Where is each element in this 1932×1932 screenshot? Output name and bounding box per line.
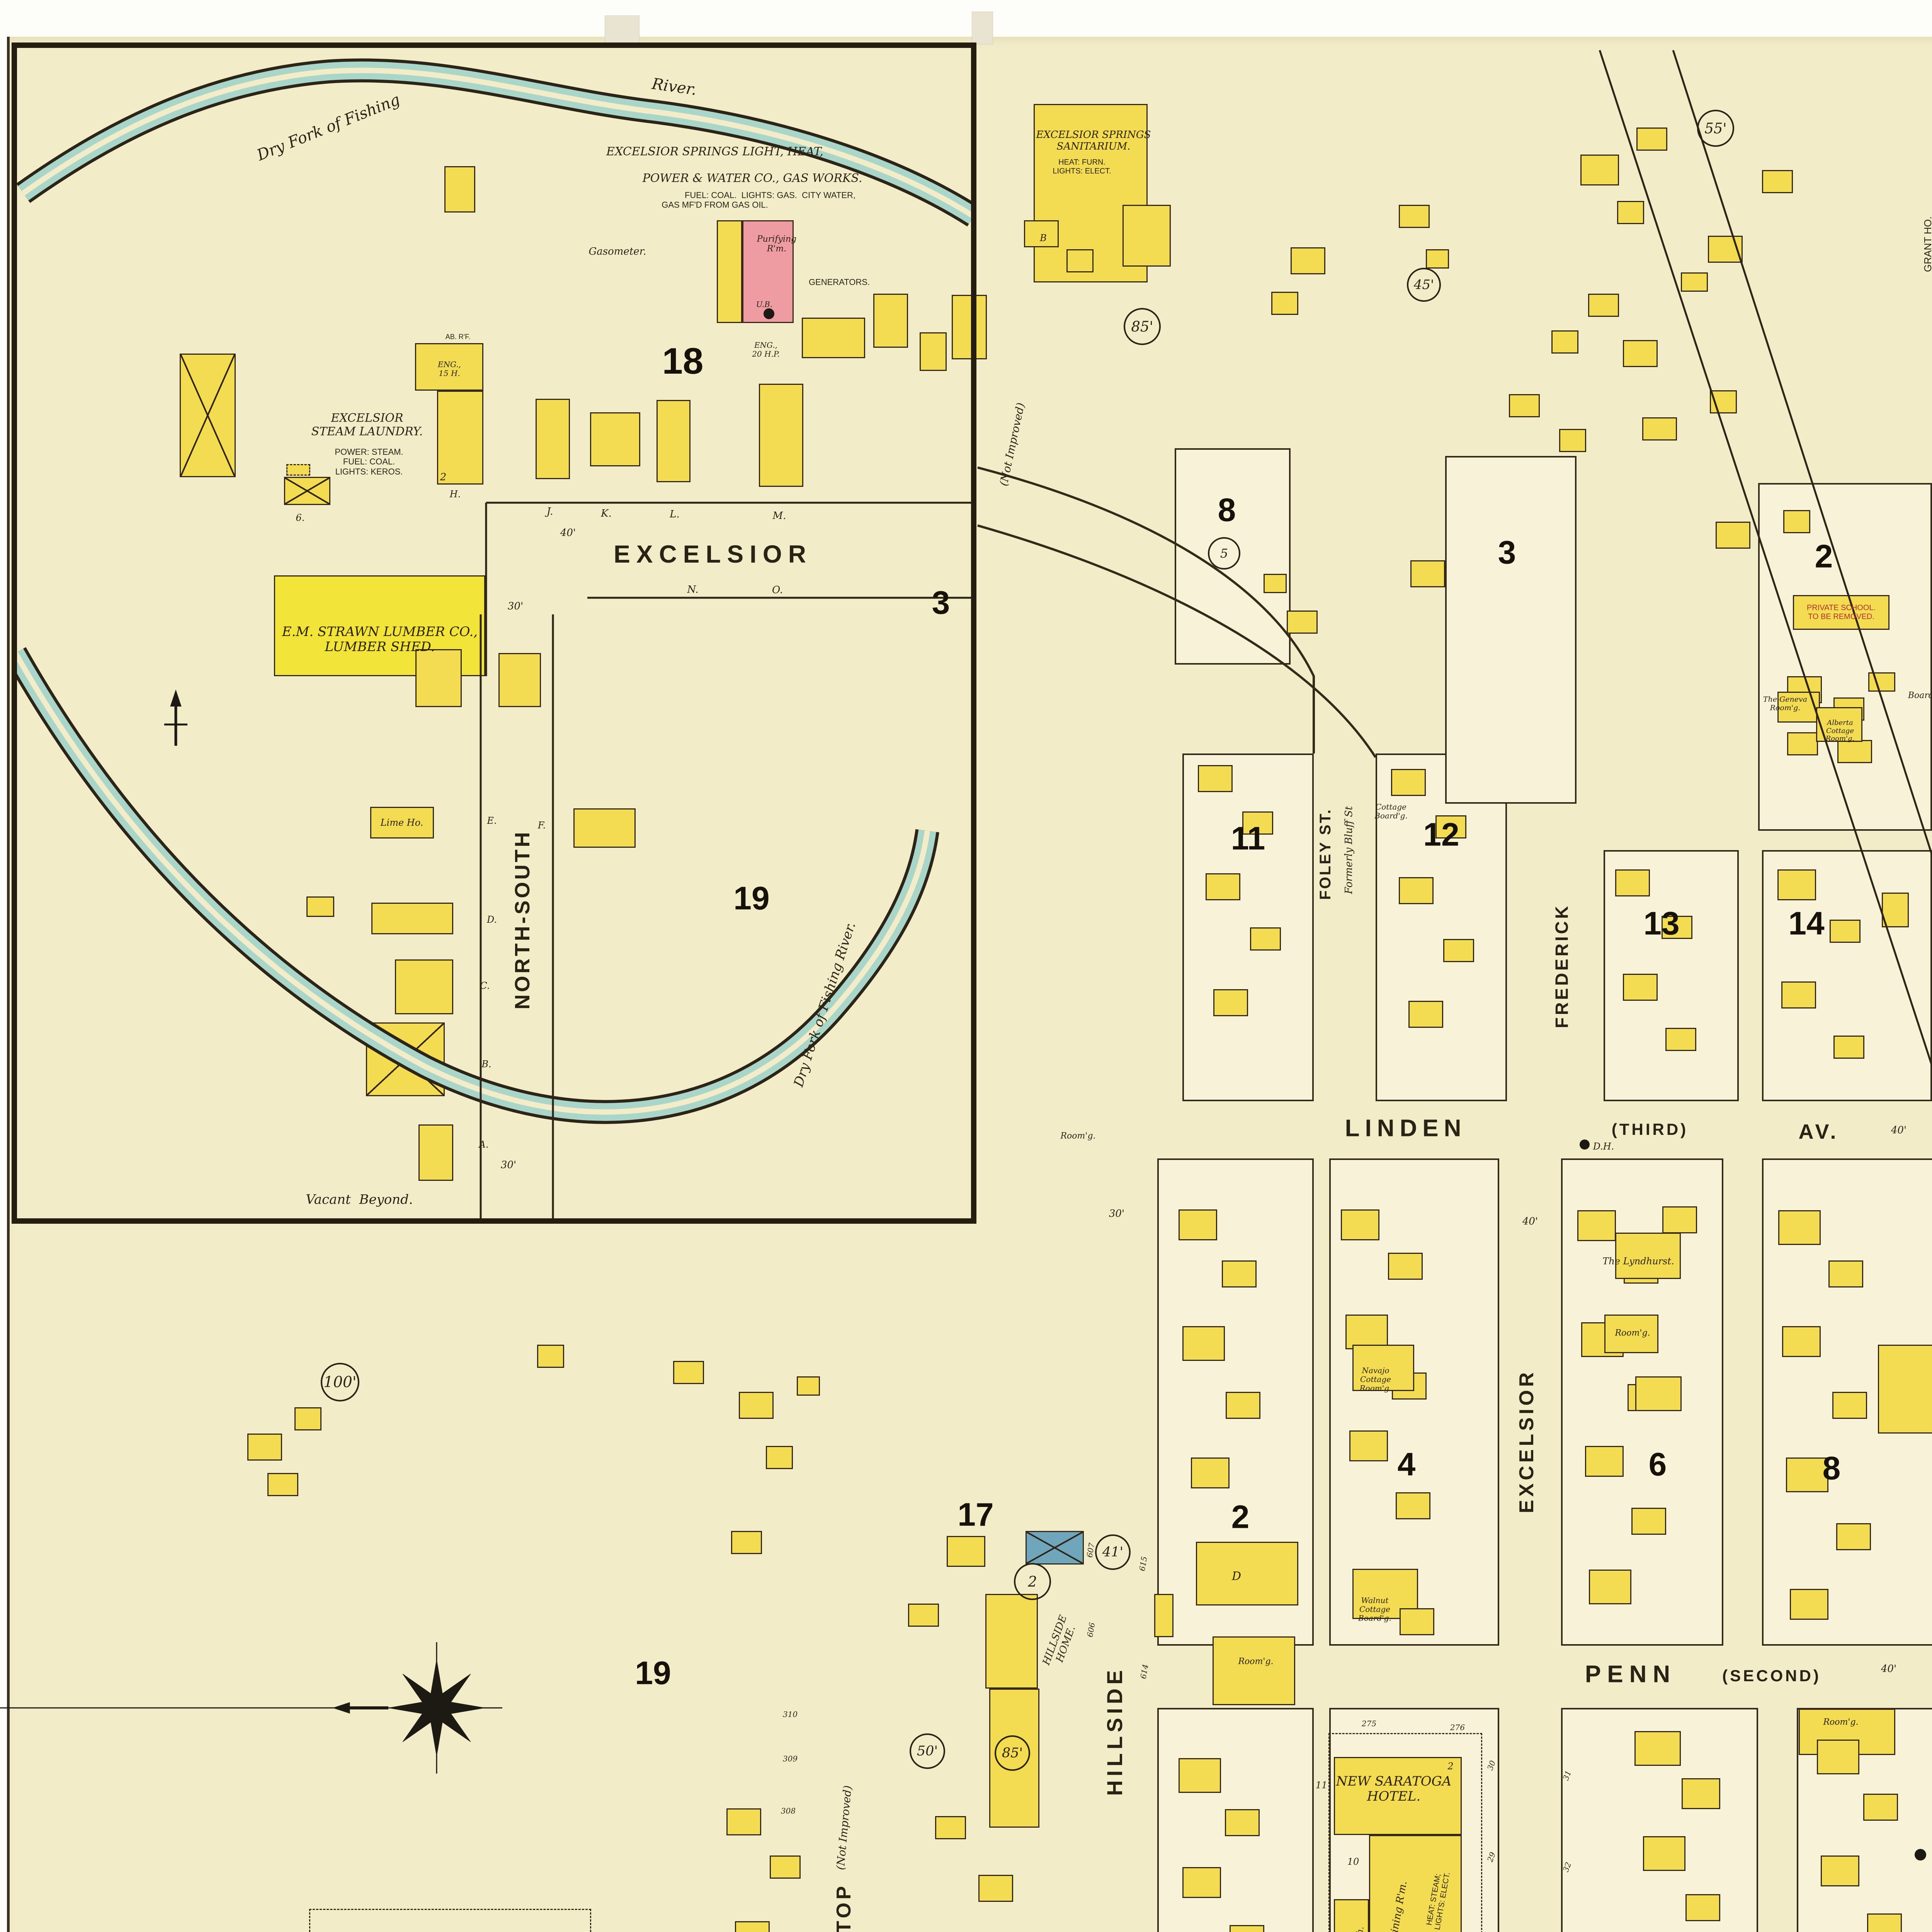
map-label: 12 [1423,816,1459,854]
map-label: 606 [1085,1622,1097,1638]
map-label: FUEL: COAL. LIGHTS: GAS. CITY WATER, [685,190,855,200]
map-label: 2 [1447,1761,1453,1772]
map-label: 30' [1109,1208,1124,1220]
hydrant-dot-icon [1915,1849,1926,1861]
map-label: HEAT: STEAM; LIGHTS: ELECT. [1424,1870,1452,1931]
measurement-circle: 2 [1014,1563,1051,1600]
map-label: 17 [957,1496,993,1534]
map-label: NORTH-SOUTH [510,830,534,1010]
map-label: 276 [1450,1723,1465,1732]
map-label: EXCELSIOR [614,540,812,569]
map-label: U.B. [756,300,772,309]
map-label: Dry Fork of Fishing [254,91,402,165]
map-label: 8 [1218,492,1236,529]
measurement-circle: 5 [1208,537,1240,570]
map-label: GRANT HO. [1922,216,1932,272]
map-label: EXCELSIOR STEAM LAUNDRY. [311,412,423,439]
map-label: J. [547,506,553,518]
map-label: H. [450,489,461,500]
map-label: LINDEN [1345,1114,1467,1142]
map-label: 40' [1881,1663,1896,1675]
map-label: D. [487,915,497,925]
map-label: (THIRD) [1612,1120,1688,1139]
map-label: F. [538,820,546,831]
map-label: 6 [1649,1446,1667,1483]
measurement-circle: 41' [1095,1534,1131,1570]
map-label: 14 [1788,905,1824,942]
map-label: 29 [1486,1851,1497,1863]
map-label: ENG., 15 H. [438,360,461,378]
map-label: 19 [733,880,769,917]
map-label: POWER: STEAM. FUEL: COAL. LIGHTS: KEROS. [335,447,403,476]
measurement-circle: 85' [995,1735,1030,1771]
map-label: HILLSIDE [1102,1666,1127,1796]
map-label: Lime Ho. [381,818,423,828]
map-label: Kitch. [1352,1925,1366,1932]
hydrant-dot-icon [764,308,774,319]
map-label: The Lyndhurst. [1602,1256,1674,1267]
map-label: Board'g. [1908,690,1932,700]
map-label: 275 [1362,1719,1376,1728]
map-label: A. [479,1139,489,1150]
map-label: EXCELSIOR SPRINGS LIGHT, HEAT, [606,145,823,159]
map-label: Room'g. [1238,1656,1273,1666]
map-label: EXCELSIOR SPRINGS SANITARIUM. [1036,129,1151,153]
measurement-circle: 85' [1124,308,1161,345]
map-label: EXCELSIOR [1515,1369,1539,1514]
map-label: 6. [296,513,305,524]
map-label: 615 [1138,1556,1149,1572]
map-label: N. [687,584,698,596]
map-label: Gasometer. [589,246,646,258]
map-label: Cottage Board'g. [1374,803,1408,820]
map-label: (Not Improved) [834,1785,854,1870]
labels-layer: DEC. 1905 EXCELSIOR SPRINGS MO. 2 Map Di… [0,0,1932,1932]
map-label: 8 [1823,1450,1841,1487]
map-label: PRIVATE SCHOOL. TO BE REMOVED. [1807,604,1876,621]
map-label: Alberta Cottage Room'g. [1826,719,1855,743]
map-label: B [1040,233,1047,244]
measurement-circle: 45' [1407,268,1441,302]
map-label: Dry Fork of Fishing River. [791,920,859,1089]
measurement-circle: 55' [1697,110,1734,147]
map-label: Room'g. [1823,1717,1858,1727]
map-label: 3 [932,584,950,622]
map-label: 40' [1891,1125,1906,1136]
map-label: 40' [560,527,576,539]
map-label: Formerly Bluff St [1344,806,1355,894]
map-label: E.M. STRAWN LUMBER CO., LUMBER SHED. [282,624,478,655]
measurement-circle: 100' [321,1363,359,1401]
map-label: GENERATORS. [809,277,870,287]
map-label: Room'g. [1060,1131,1095,1141]
map-label: POWER & WATER CO., GAS WORKS. [643,172,862,185]
map-label: 308 [781,1807,796,1816]
map-label: L. [670,509,680,520]
map-label: HEAT: FURN. LIGHTS: ELECT. [1053,158,1111,176]
map-label: (SECOND) [1722,1667,1821,1685]
map-label: Walnut Cottage Board'g. [1358,1596,1391,1623]
map-label: 7 [1844,1927,1862,1932]
map-label: FOLEY ST. [1316,808,1334,900]
map-label: 40' [1522,1216,1538,1228]
inset-map-frame [12,43,976,1224]
map-label: GAS MF'D FROM GAS OIL. [662,200,768,209]
map-label: E. [487,816,497,827]
map-label: 30 [1486,1759,1497,1772]
map-label: 32 [1561,1861,1573,1873]
measurement-circle: 50' [910,1733,945,1769]
map-label: 11 [1316,1780,1328,1791]
map-label: 310 [783,1710,798,1719]
map-label: M. [773,510,786,522]
map-label: The Geneva Room'g. [1763,696,1807,713]
map-label: River. [651,75,698,99]
map-label: FREDERICK [1552,904,1572,1028]
map-label: AV. [1798,1120,1839,1144]
map-label: B. [481,1059,491,1070]
hydrant-dot-icon [1580,1139,1590,1150]
map-label: 13 [1643,905,1679,942]
map-label: Purifying R'm. [757,235,796,254]
map-label: 11 [1231,820,1265,857]
map-label: 2 [1815,538,1833,575]
map-label: (Not Improved) [997,401,1027,487]
map-label: 30' [501,1160,516,1171]
map-label: 3 [1498,534,1516,571]
map-label: Vacant Beyond. [306,1192,413,1207]
map-label: ENG., 20 H.P. [752,341,779,359]
map-label: 309 [783,1755,798,1764]
map-label: 30' [508,601,523,612]
map-label: Dining R'm. [1388,1880,1410,1932]
sanborn-map-sheet: DEC. 1905 EXCELSIOR SPRINGS MO. 2 Map Di… [0,0,1932,1932]
map-label: 4 [1398,1446,1416,1483]
map-label: D [1232,1570,1241,1583]
map-label: 18 [662,340,704,383]
map-label: HILLTOP [833,1883,856,1932]
map-label: 614 [1139,1663,1150,1680]
map-label: 10 [1347,1857,1359,1867]
map-label: 19 [635,1655,671,1692]
map-label: O. [772,585,783,596]
map-label: 2 [1231,1498,1250,1536]
map-label: K. [601,508,612,520]
map-label: Navajo Cottage Room'g. [1360,1366,1392,1393]
map-label: HILLSIDE HOME. [1041,1614,1080,1671]
map-label: NEW SARATOGA HOTEL. [1336,1774,1452,1804]
map-label: Room'g. [1615,1328,1650,1338]
map-label: AB. R'F. [446,333,470,341]
map-label: D.H. [1593,1141,1614,1152]
map-label: 31 [1561,1769,1573,1782]
map-label: PENN [1585,1660,1676,1688]
map-label: 2 [440,472,447,483]
map-label: C. [480,981,490,992]
